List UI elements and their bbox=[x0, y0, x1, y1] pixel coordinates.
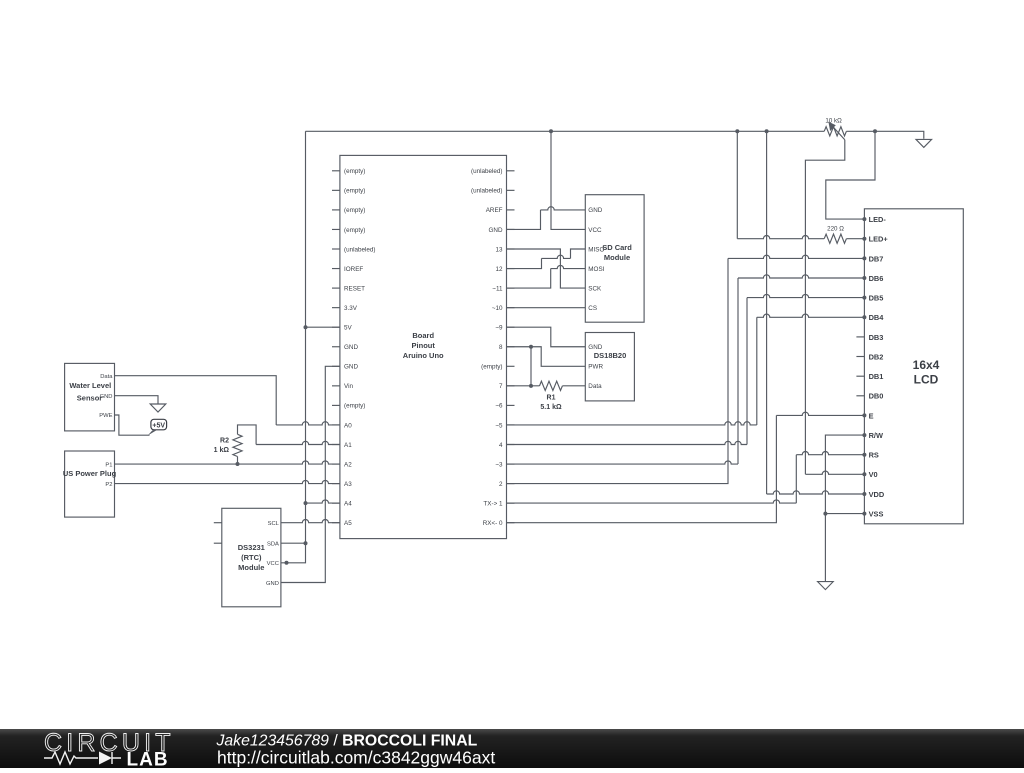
svg-text:Module: Module bbox=[238, 563, 264, 572]
svg-text:(unlabeled): (unlabeled) bbox=[471, 188, 503, 195]
svg-text:3.3V: 3.3V bbox=[344, 305, 358, 312]
svg-text:DS3231: DS3231 bbox=[238, 543, 265, 552]
svg-text:MOSI: MOSI bbox=[588, 266, 604, 273]
svg-text:Aruino Uno: Aruino Uno bbox=[403, 351, 444, 360]
svg-text:SCK: SCK bbox=[588, 285, 602, 292]
svg-text:(empty): (empty) bbox=[344, 227, 365, 234]
svg-text:LED-: LED- bbox=[869, 215, 887, 224]
svg-text:A3: A3 bbox=[344, 481, 352, 488]
svg-text:RX<- 0: RX<- 0 bbox=[483, 520, 503, 527]
svg-text:1 kΩ: 1 kΩ bbox=[214, 447, 230, 454]
svg-text:10 kΩ: 10 kΩ bbox=[825, 118, 842, 125]
svg-text:AREF: AREF bbox=[486, 207, 503, 214]
svg-text:A0: A0 bbox=[344, 422, 352, 429]
svg-text:P1: P1 bbox=[105, 462, 112, 468]
svg-text:(empty): (empty) bbox=[344, 403, 365, 410]
svg-text:SDA: SDA bbox=[267, 542, 279, 548]
svg-text:16x4: 16x4 bbox=[913, 358, 940, 372]
svg-text:DB4: DB4 bbox=[869, 313, 885, 322]
svg-text:E: E bbox=[869, 411, 874, 420]
svg-text:A2: A2 bbox=[344, 461, 352, 468]
svg-text:PWE: PWE bbox=[99, 413, 112, 419]
svg-text:~9: ~9 bbox=[495, 325, 503, 332]
svg-text:A4: A4 bbox=[344, 501, 352, 508]
svg-text:A1: A1 bbox=[344, 442, 352, 449]
svg-text:Data: Data bbox=[100, 374, 113, 380]
svg-text:~11: ~11 bbox=[492, 285, 503, 292]
svg-text:Vin: Vin bbox=[344, 383, 353, 390]
svg-text:V0: V0 bbox=[869, 470, 878, 479]
svg-text:VCC: VCC bbox=[267, 561, 279, 567]
svg-text:220 Ω: 220 Ω bbox=[827, 226, 844, 233]
svg-text:(unlabeled): (unlabeled) bbox=[344, 246, 376, 253]
svg-text:R1: R1 bbox=[547, 394, 556, 401]
svg-text:P2: P2 bbox=[105, 482, 112, 488]
svg-text:DB1: DB1 bbox=[869, 372, 884, 381]
svg-text:TX-> 1: TX-> 1 bbox=[483, 501, 503, 508]
svg-text:R/W: R/W bbox=[869, 431, 883, 440]
svg-text:Water Level: Water Level bbox=[69, 381, 111, 390]
svg-text:PWR: PWR bbox=[588, 364, 603, 371]
svg-text:DB5: DB5 bbox=[869, 294, 884, 303]
svg-text:http://circuitlab.com/c3842ggw: http://circuitlab.com/c3842ggw46axt bbox=[217, 748, 495, 768]
svg-text:VSS: VSS bbox=[869, 510, 884, 519]
svg-text:DB2: DB2 bbox=[869, 352, 884, 361]
svg-text:SCL: SCL bbox=[268, 521, 280, 527]
svg-text:DB7: DB7 bbox=[869, 254, 884, 263]
svg-text:Sensor: Sensor bbox=[77, 393, 103, 402]
svg-text:GND: GND bbox=[266, 581, 279, 587]
svg-text:RS: RS bbox=[869, 451, 879, 460]
svg-text:~3: ~3 bbox=[495, 461, 503, 468]
svg-text:RESET: RESET bbox=[344, 285, 365, 292]
svg-text:SD Card: SD Card bbox=[602, 243, 632, 252]
svg-text:Data: Data bbox=[588, 383, 602, 390]
svg-text:VDD: VDD bbox=[869, 490, 885, 499]
svg-text:(RTC): (RTC) bbox=[241, 553, 262, 562]
svg-text:Module: Module bbox=[604, 253, 630, 262]
svg-text:(empty): (empty) bbox=[344, 168, 365, 175]
svg-text:5.1 kΩ: 5.1 kΩ bbox=[540, 404, 562, 411]
svg-text:R2: R2 bbox=[220, 438, 229, 445]
svg-text:(unlabeled): (unlabeled) bbox=[471, 168, 503, 175]
svg-text:LED+: LED+ bbox=[869, 235, 889, 244]
svg-text:GND: GND bbox=[489, 227, 503, 234]
svg-text:DB3: DB3 bbox=[869, 333, 884, 342]
svg-text:8: 8 bbox=[499, 344, 503, 351]
svg-text:+5V: +5V bbox=[152, 422, 165, 429]
svg-text:12: 12 bbox=[495, 266, 503, 273]
svg-text:GND: GND bbox=[344, 344, 358, 351]
svg-text:13: 13 bbox=[495, 246, 503, 253]
svg-text:GND: GND bbox=[588, 207, 602, 214]
svg-text:LAB: LAB bbox=[127, 750, 169, 769]
svg-text:7: 7 bbox=[499, 383, 503, 390]
svg-text:~6: ~6 bbox=[495, 403, 503, 410]
svg-text:LCD: LCD bbox=[914, 373, 939, 387]
svg-text:CS: CS bbox=[588, 305, 597, 312]
svg-text:5V: 5V bbox=[344, 325, 353, 332]
svg-text:IOREF: IOREF bbox=[344, 266, 363, 273]
svg-text:2: 2 bbox=[499, 481, 503, 488]
svg-text:(empty): (empty) bbox=[344, 188, 365, 195]
svg-text:4: 4 bbox=[499, 442, 503, 449]
svg-text:VCC: VCC bbox=[588, 227, 602, 234]
svg-text:US Power Plug: US Power Plug bbox=[63, 469, 117, 478]
svg-text:(empty): (empty) bbox=[344, 207, 365, 214]
svg-text:A5: A5 bbox=[344, 520, 352, 527]
svg-text:GND: GND bbox=[344, 364, 358, 371]
svg-text:~5: ~5 bbox=[495, 422, 503, 429]
svg-text:DB6: DB6 bbox=[869, 274, 884, 283]
svg-text:~10: ~10 bbox=[492, 305, 503, 312]
svg-text:DS18B20: DS18B20 bbox=[594, 351, 627, 360]
svg-text:Pinout: Pinout bbox=[412, 341, 436, 350]
svg-text:DB0: DB0 bbox=[869, 392, 884, 401]
svg-text:(empty): (empty) bbox=[481, 364, 502, 371]
svg-text:Board: Board bbox=[412, 331, 434, 340]
